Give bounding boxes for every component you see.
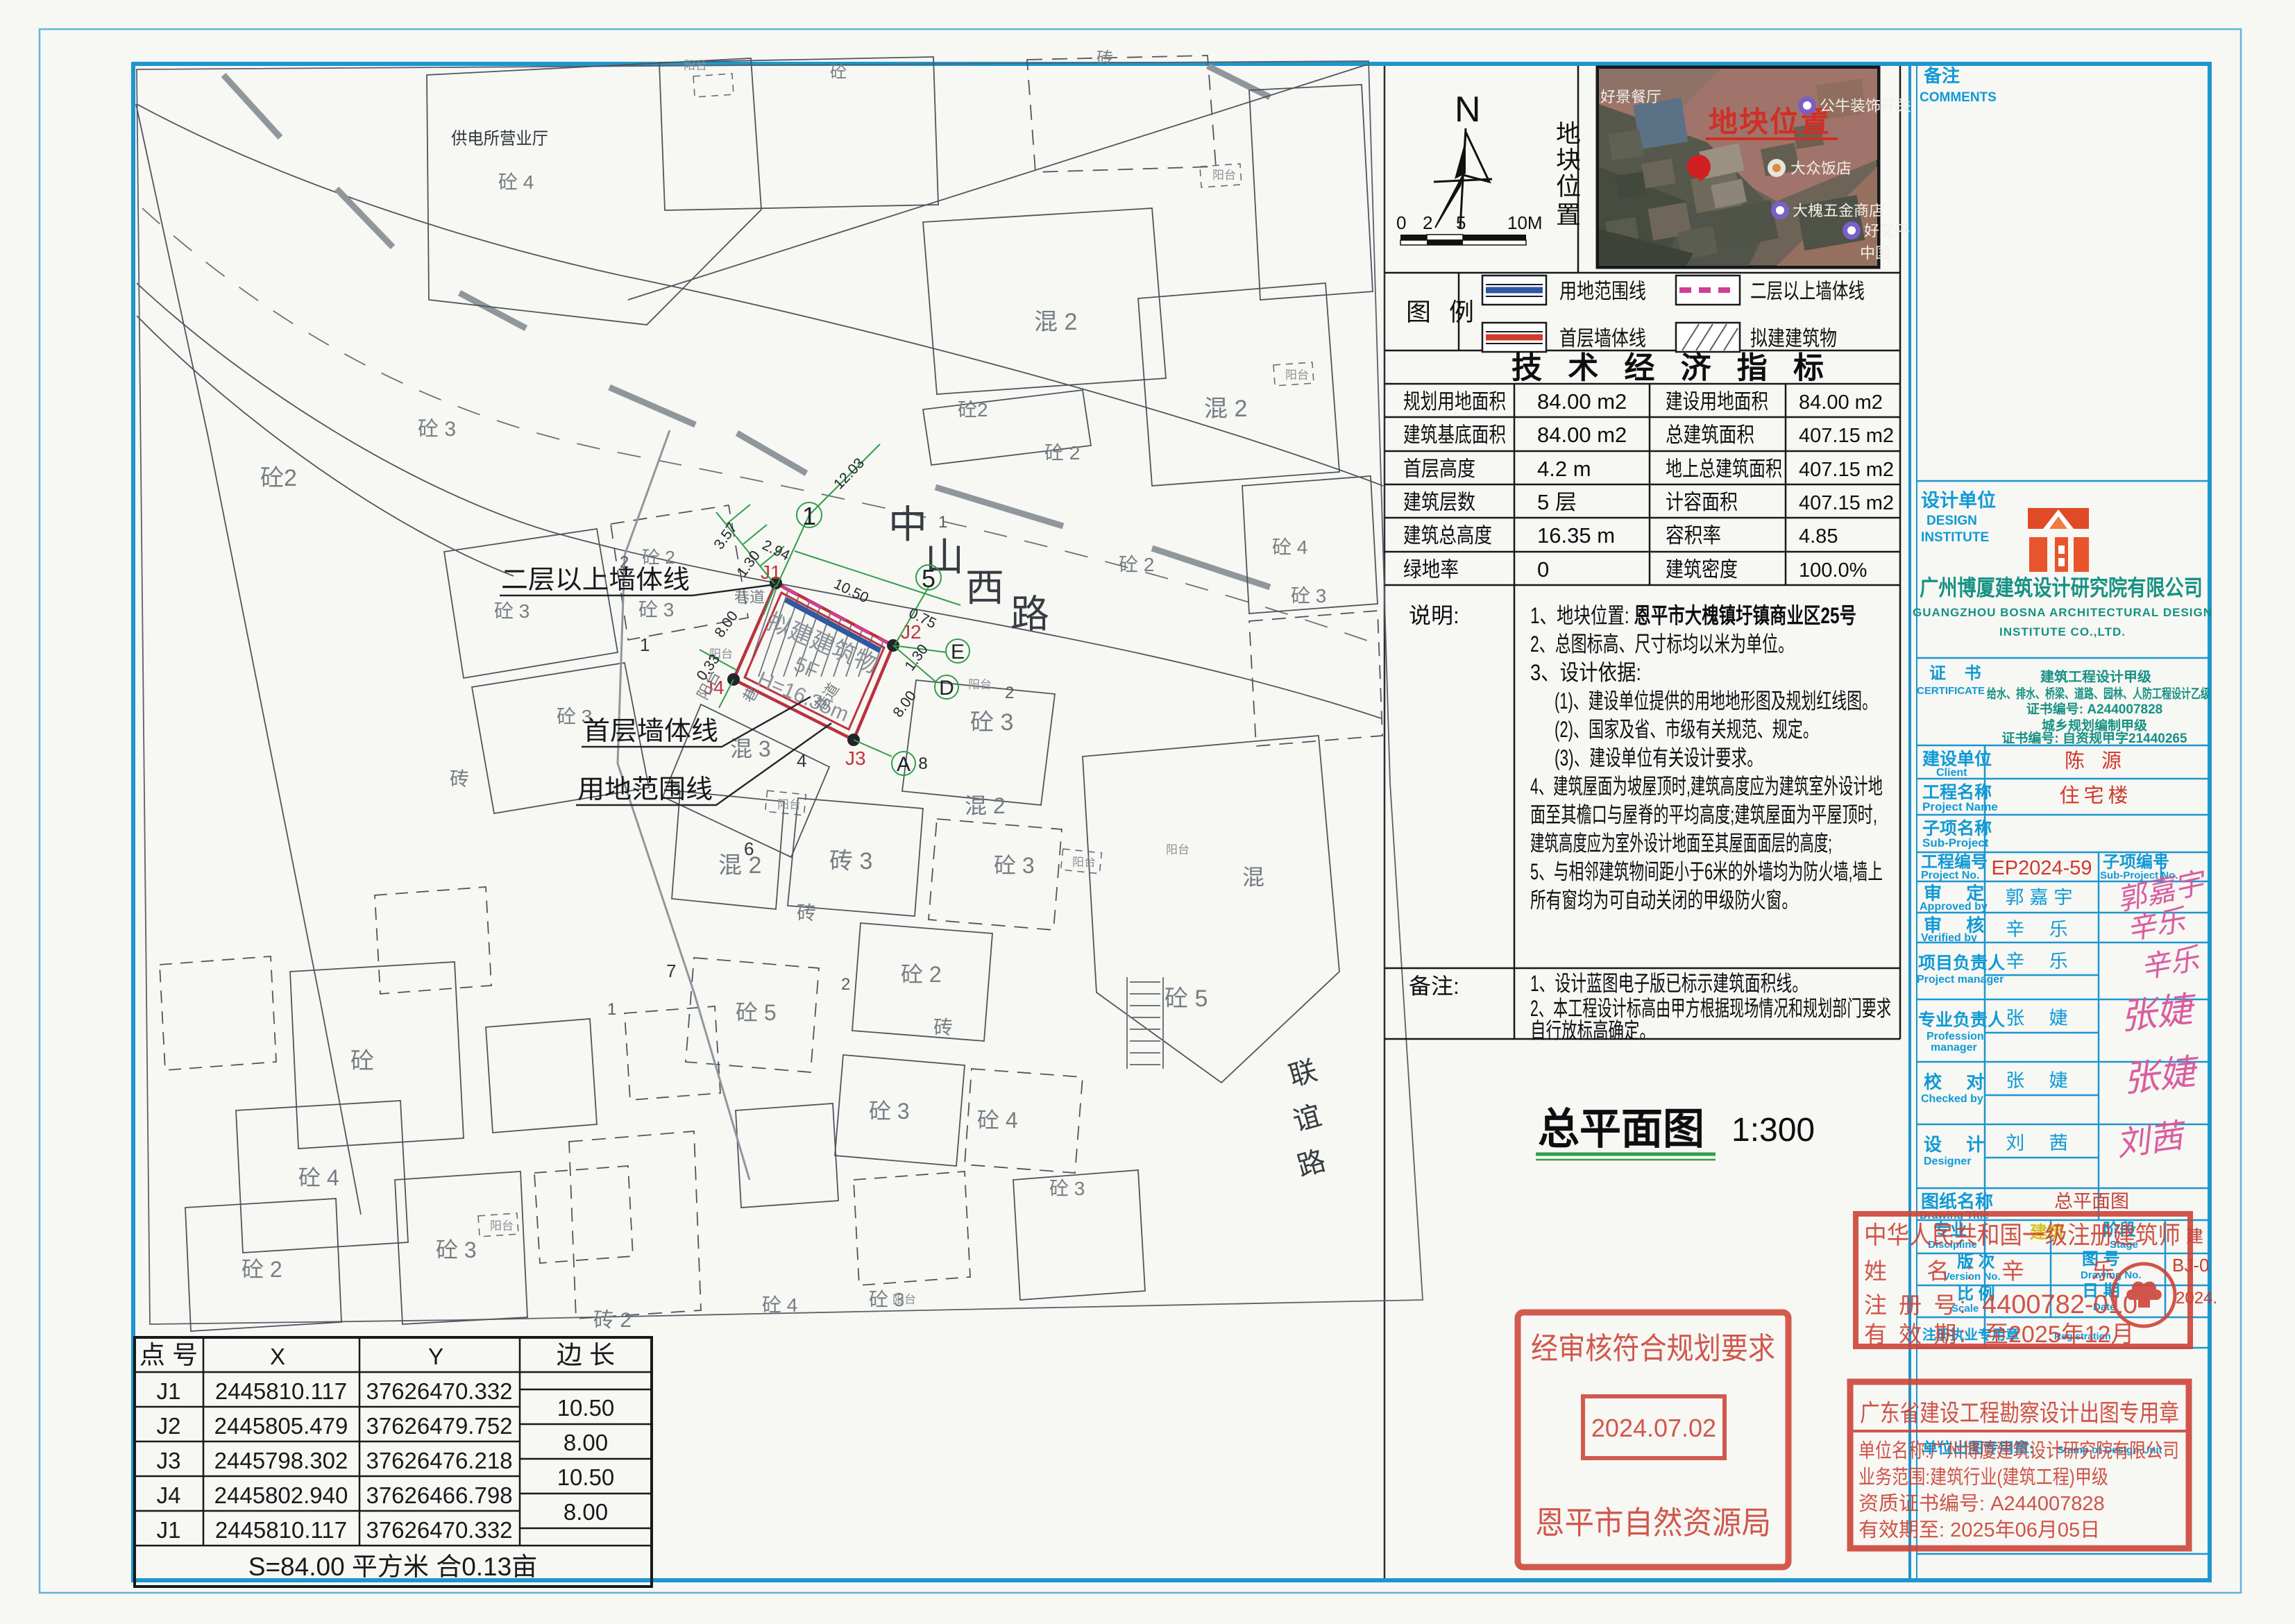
svg-text:DESIGN: DESIGN (1926, 514, 1977, 528)
svg-text:2: 2 (1005, 684, 1014, 702)
svg-text:供电所营业厅: 供电所营业厅 (451, 129, 548, 149)
svg-text:37626476.218: 37626476.218 (366, 1448, 512, 1473)
svg-text:广东省建设工程勘察设计出图专用章: 广东省建设工程勘察设计出图专用章 (1860, 1400, 2179, 1427)
svg-text:辛 乐: 辛 乐 (2006, 951, 2078, 972)
svg-text:绿地率: 绿地率 (1403, 557, 1459, 582)
svg-text:自行放标高确定。: 自行放标高确定。 (1530, 1018, 1655, 1043)
svg-text:12.03: 12.03 (831, 455, 867, 493)
svg-text:EP2024-59: EP2024-59 (1991, 857, 2092, 879)
svg-text:2、总图标高、尺寸标均以米为单位。: 2、总图标高、尺寸标均以米为单位。 (1530, 632, 1794, 657)
svg-text:2024.07.02: 2024.07.02 (1591, 1414, 1716, 1442)
svg-text:2445810.117: 2445810.117 (215, 1378, 347, 1404)
svg-text:1、地块位置: 恩平市大槐镇圩镇商业区25号: 1、地块位置: 恩平市大槐镇圩镇商业区25号 (1530, 603, 1856, 628)
svg-text:资质证书编号: A244007828: 资质证书编号: A244007828 (1858, 1493, 2105, 1515)
svg-text:置: 置 (1556, 201, 1581, 229)
svg-text:2: 2 (1423, 212, 1432, 233)
svg-text:混: 混 (1242, 865, 1264, 890)
svg-text:地上总建筑面积: 地上总建筑面积 (1666, 457, 1782, 481)
svg-text:manager: manager (1931, 1042, 1977, 1054)
svg-text:Project No.: Project No. (1921, 870, 1979, 881)
svg-text:37626479.752: 37626479.752 (366, 1413, 512, 1439)
svg-text:路: 路 (1294, 1145, 1329, 1182)
svg-text:84.00 m2: 84.00 m2 (1537, 389, 1627, 414)
svg-text:(3)、建设单位有关设计要求。: (3)、建设单位有关设计要求。 (1555, 745, 1763, 770)
svg-text:计容面积: 计容面积 (1666, 490, 1738, 514)
svg-text:J1: J1 (157, 1378, 181, 1404)
svg-text:阳台: 阳台 (1072, 856, 1096, 869)
svg-text:0: 0 (1396, 212, 1406, 233)
svg-text:2、本工程设计标高由甲方根据现场情况和规划部门要求: 2、本工程设计标高由甲方根据现场情况和规划部门要求 (1530, 996, 1891, 1021)
svg-text:砼 2: 砼 2 (1119, 554, 1154, 575)
svg-text:首层墙体线: 首层墙体线 (1559, 326, 1646, 350)
svg-text:J3: J3 (157, 1448, 181, 1473)
svg-text:1: 1 (607, 1000, 616, 1019)
svg-text:407.15 m2: 407.15 m2 (1799, 459, 1894, 481)
svg-text:砼 2: 砼 2 (242, 1257, 282, 1282)
svg-text:所有窗均为可自动关闭的甲级防火窗。: 所有窗均为可自动关闭的甲级防火窗。 (1530, 888, 1797, 913)
svg-text:2445798.302: 2445798.302 (214, 1448, 348, 1473)
svg-text:砼: 砼 (350, 1048, 374, 1074)
svg-text:100.0%: 100.0% (1799, 559, 1867, 582)
svg-text:中国: 中国 (1860, 244, 1890, 262)
svg-text:技 术 经 济 指 标: 技 术 经 济 指 标 (1511, 351, 1824, 385)
svg-text:公牛装饰开关: 公牛装饰开关 (1820, 97, 1911, 115)
svg-text:联: 联 (1285, 1055, 1321, 1092)
svg-text:辛 乐: 辛 乐 (2006, 919, 2078, 940)
svg-text:建筑密度: 建筑密度 (1666, 557, 1738, 582)
svg-text:砖: 砖 (797, 902, 816, 924)
svg-text:边 长: 边 长 (557, 1341, 615, 1369)
svg-text:砼 3: 砼 3 (494, 600, 530, 622)
svg-text:大众饭店: 大众饭店 (1790, 160, 1852, 177)
svg-text:单位名称:广州博厦建筑设计研究院有限公司: 单位名称:广州博厦建筑设计研究院有限公司 (1858, 1440, 2179, 1462)
svg-text:图 例: 图 例 (1406, 298, 1480, 326)
svg-text:4、建筑屋面为坡屋顶时,建筑高度应为建筑室外设计地: 4、建筑屋面为坡屋顶时,建筑高度应为建筑室外设计地 (1530, 774, 1883, 799)
svg-text:辛乐: 辛乐 (2138, 942, 2203, 984)
svg-text:给水、排水、桥梁、道路、园林、人防工程设计乙级: 给水、排水、桥梁、道路、园林、人防工程设计乙级 (1987, 686, 2211, 702)
svg-text:二层以上墙体线: 二层以上墙体线 (501, 566, 690, 595)
svg-text:8.00: 8.00 (564, 1499, 608, 1525)
svg-text:GUANGZHOU BOSNA ARCHITECTURAL: GUANGZHOU BOSNA ARCHITECTURAL DESIGN (1913, 606, 2212, 619)
svg-text:注 册 号:: 注 册 号: (1864, 1292, 1969, 1318)
svg-text:陈 源: 陈 源 (2065, 750, 2127, 772)
svg-text:姓 名:: 姓 名: (1864, 1258, 1989, 1284)
svg-text:N: N (1455, 90, 1481, 130)
svg-text:CERTIFICATE: CERTIFICATE (1917, 685, 1985, 697)
svg-text:Project Name: Project Name (1922, 800, 1998, 813)
svg-text:好又平: 好又平 (1864, 222, 1910, 239)
svg-text:(2)、国家及省、市级有关规范、规定。: (2)、国家及省、市级有关规范、规定。 (1555, 717, 1818, 742)
svg-text:8.00: 8.00 (890, 688, 920, 720)
svg-text:拟建建筑物: 拟建建筑物 (1750, 326, 1837, 350)
svg-text:Client: Client (1936, 767, 1967, 779)
svg-text:Checked by: Checked by (1921, 1093, 1983, 1105)
svg-text:砼 5: 砼 5 (736, 1000, 777, 1025)
svg-text:面至其檐口与屋脊的平均高度;建筑屋面为平屋顶时,: 面至其檐口与屋脊的平均高度;建筑屋面为平屋顶时, (1530, 802, 1877, 827)
svg-text:37626470.332: 37626470.332 (366, 1378, 512, 1404)
svg-text:砼 4: 砼 4 (1272, 536, 1307, 558)
svg-text:有效期至: 2025年06月05日: 有效期至: 2025年06月05日 (1858, 1519, 2100, 1541)
svg-text:407.15 m2: 407.15 m2 (1799, 492, 1894, 514)
svg-text:砼 3: 砼 3 (436, 1237, 477, 1262)
svg-text:5: 5 (1456, 212, 1466, 233)
svg-text:建筑总高度: 建筑总高度 (1403, 523, 1492, 548)
svg-text:设 计: 设 计 (1924, 1134, 1994, 1155)
svg-text:砼 4: 砼 4 (298, 1165, 339, 1190)
svg-text:用地范围线: 用地范围线 (577, 775, 713, 804)
svg-text:7: 7 (666, 961, 676, 981)
svg-text:设计单位: 设计单位 (1921, 490, 1996, 511)
svg-text:砼 2: 砼 2 (1044, 442, 1080, 464)
svg-text:容积率: 容积率 (1666, 523, 1721, 548)
svg-text:Verified by: Verified by (1921, 932, 1977, 944)
svg-text:巷道: 巷道 (734, 589, 765, 606)
svg-text:J1: J1 (157, 1517, 181, 1543)
svg-text:Designer: Designer (1924, 1156, 1971, 1167)
svg-text:建筑基底面积: 建筑基底面积 (1403, 423, 1506, 447)
svg-text:10.50: 10.50 (557, 1464, 615, 1490)
svg-text:2445802.940: 2445802.940 (214, 1482, 348, 1508)
svg-text:用地范围线: 用地范围线 (1559, 279, 1646, 303)
svg-text:407.15 m2: 407.15 m2 (1799, 425, 1894, 447)
svg-text:张婕: 张婕 (2119, 990, 2199, 1038)
svg-text:10M: 10M (1507, 212, 1543, 233)
svg-text:证 书: 证 书 (1929, 664, 1988, 683)
svg-text:砖: 砖 (933, 1017, 953, 1038)
svg-text:1.30: 1.30 (901, 641, 931, 674)
svg-text:恩平市自然资源局: 恩平市自然资源局 (1535, 1505, 1771, 1541)
svg-text:总平面图: 总平面图 (1538, 1106, 1704, 1153)
svg-text:证书编号: A244007828: 证书编号: A244007828 (2026, 702, 2162, 717)
svg-text:阳台: 阳台 (892, 1293, 916, 1306)
svg-text:张 婕: 张 婕 (2006, 1008, 2078, 1029)
svg-text:砼 3: 砼 3 (418, 418, 456, 441)
svg-text:阳台: 阳台 (968, 678, 992, 691)
svg-text:混 3: 混 3 (730, 736, 771, 761)
svg-text:2024.: 2024. (2176, 1289, 2217, 1308)
svg-text:2445805.479: 2445805.479 (214, 1413, 348, 1439)
svg-text:张 婕: 张 婕 (2006, 1070, 2078, 1091)
svg-text:证书编号: 自资规甲字21440265: 证书编号: 自资规甲字21440265 (2001, 731, 2187, 746)
svg-text:0: 0 (1537, 557, 1549, 582)
svg-text:砖: 砖 (450, 768, 469, 790)
svg-text:首层墙体线: 首层墙体线 (583, 717, 718, 746)
svg-text:砼 4: 砼 4 (977, 1108, 1018, 1133)
svg-text:备注:: 备注: (1409, 974, 1459, 999)
svg-text:住宅楼: 住宅楼 (2059, 785, 2132, 807)
svg-text:总平面图: 总平面图 (2054, 1191, 2129, 1212)
svg-text:至2025年12月: 至2025年12月 (1985, 1321, 2134, 1348)
svg-text:5、与相邻建筑物间距小于6米的外墙均为防火墙,墙上: 5、与相邻建筑物间距小于6米的外墙均为防火墙,墙上 (1530, 859, 1883, 884)
svg-text:37626470.332: 37626470.332 (366, 1517, 512, 1543)
svg-text:建筑层数: 建筑层数 (1403, 490, 1475, 514)
svg-text:D: D (939, 677, 954, 700)
svg-text:E: E (951, 641, 965, 663)
svg-text:砼 5: 砼 5 (1165, 986, 1208, 1012)
svg-text:阳台: 阳台 (1285, 369, 1309, 382)
svg-text:点 号: 点 号 (139, 1341, 198, 1369)
svg-text:砼: 砼 (830, 63, 847, 82)
svg-text:阳台: 阳台 (1166, 843, 1189, 856)
svg-text:说明:: 说明: (1409, 603, 1459, 628)
svg-text:子项编号: 子项编号 (2103, 853, 2169, 872)
svg-text:砼 3: 砼 3 (994, 853, 1035, 878)
svg-text:INSTITUTE: INSTITUTE (1921, 530, 1989, 545)
svg-text:阳台: 阳台 (777, 798, 801, 811)
svg-text:建筑工程设计甲级: 建筑工程设计甲级 (2040, 669, 2152, 685)
svg-text:Profession: Profession (1926, 1031, 1984, 1042)
svg-text:混 2: 混 2 (965, 793, 1006, 818)
svg-text:大槐五金商店: 大槐五金商店 (1793, 202, 1884, 219)
svg-text:路: 路 (1010, 592, 1049, 636)
svg-text:2445810.117: 2445810.117 (215, 1517, 347, 1543)
svg-text:砖: 砖 (1096, 49, 1113, 68)
svg-text:有 效 期:: 有 效 期: (1864, 1321, 1969, 1347)
svg-text:砼 3: 砼 3 (869, 1099, 910, 1124)
svg-text:中华人民共和国一级注册建筑师: 中华人民共和国一级注册建筑师 (1864, 1221, 2180, 1249)
svg-text:中: 中 (888, 502, 927, 546)
svg-text:1: 1 (802, 502, 816, 530)
svg-text:5 层: 5 层 (1537, 490, 1577, 514)
svg-text:84.00 m2: 84.00 m2 (1799, 391, 1883, 414)
svg-text:8.00: 8.00 (564, 1430, 608, 1455)
svg-text:Project manager: Project manager (1917, 974, 2004, 986)
svg-text:S=84.00 平方米 合0.13亩: S=84.00 平方米 合0.13亩 (248, 1553, 537, 1581)
svg-text:砼2: 砼2 (260, 465, 297, 491)
svg-text:1: 1 (640, 634, 650, 655)
svg-text:二层以上墙体线: 二层以上墙体线 (1750, 279, 1865, 303)
svg-text:阳台: 阳台 (490, 1219, 514, 1233)
svg-text:首层高度: 首层高度 (1403, 457, 1475, 481)
svg-text:谊: 谊 (1289, 1100, 1325, 1137)
svg-text:块: 块 (1556, 146, 1581, 174)
svg-text:刘 茜: 刘 茜 (2006, 1133, 2078, 1153)
svg-text:4.2 m: 4.2 m (1537, 457, 1591, 481)
svg-text:好景餐厅: 好景餐厅 (1600, 88, 1661, 105)
svg-text:2.94: 2.94 (760, 537, 793, 564)
svg-text:建设用地面积: 建设用地面积 (1666, 389, 1768, 414)
svg-text:阳台: 阳台 (684, 59, 707, 72)
svg-text:Approved by: Approved by (1920, 901, 1988, 913)
svg-text:砼 3: 砼 3 (1291, 585, 1326, 607)
svg-text:砼 2: 砼 2 (642, 547, 675, 568)
svg-text:业务范围:建筑行业(建筑工程)甲级: 业务范围:建筑行业(建筑工程)甲级 (1858, 1466, 2108, 1489)
svg-text:2: 2 (841, 975, 850, 994)
svg-text:16.35 m: 16.35 m (1537, 523, 1615, 548)
svg-text:砼 3: 砼 3 (638, 599, 674, 620)
svg-text:广州博厦建筑设计研究院有限公司: 广州博厦建筑设计研究院有限公司 (1920, 575, 2203, 600)
svg-text:(1)、建设单位提供的用地地形图及规划红线图。: (1)、建设单位提供的用地地形图及规划红线图。 (1555, 688, 1877, 713)
svg-text:J3: J3 (845, 747, 866, 769)
svg-text:砖 2: 砖 2 (593, 1309, 632, 1332)
svg-text:规划用地面积: 规划用地面积 (1403, 389, 1506, 414)
svg-text:工程编号: 工程编号 (1921, 853, 1988, 872)
svg-text:砼 2: 砼 2 (901, 962, 942, 987)
svg-text:校 对: 校 对 (1924, 1072, 1994, 1092)
svg-text:子项名称: 子项名称 (1922, 819, 1992, 838)
svg-text:地: 地 (1556, 119, 1581, 148)
svg-text:砼 3: 砼 3 (1049, 1178, 1085, 1199)
svg-text:经审核符合规划要求: 经审核符合规划要求 (1531, 1332, 1775, 1366)
svg-text:5: 5 (922, 564, 935, 593)
svg-text:J4: J4 (157, 1482, 181, 1508)
svg-text:混 2: 混 2 (718, 852, 761, 879)
svg-text:1、设计蓝图电子版已标示建筑面积线。: 1、设计蓝图电子版已标示建筑面积线。 (1530, 971, 1808, 996)
svg-text:3、设计依据:: 3、设计依据: (1530, 660, 1641, 685)
svg-text:Y: Y (428, 1344, 443, 1369)
svg-text:10.50: 10.50 (557, 1395, 615, 1421)
svg-text:建设单位: 建设单位 (1922, 750, 1992, 769)
svg-text:X: X (270, 1344, 285, 1369)
svg-text:混 2: 混 2 (1204, 396, 1247, 422)
svg-text:砖 3: 砖 3 (829, 848, 872, 874)
svg-text:砼2: 砼2 (958, 399, 988, 421)
svg-text:工程名称: 工程名称 (1922, 783, 1992, 802)
svg-text:图纸名称: 图纸名称 (1921, 1191, 1993, 1212)
svg-text:砼 3: 砼 3 (970, 709, 1013, 736)
svg-text:4.85: 4.85 (1799, 525, 1838, 548)
svg-text:西: 西 (965, 566, 1004, 609)
svg-text:8: 8 (918, 754, 927, 773)
svg-text:总建筑面积: 总建筑面积 (1666, 423, 1754, 447)
svg-text:项目负责人: 项目负责人 (1918, 954, 2005, 973)
svg-text:84.00 m2: 84.00 m2 (1537, 423, 1627, 447)
svg-text:建筑高度应为室外设计地面至其屋面面层的高度;: 建筑高度应为室外设计地面至其屋面面层的高度; (1530, 831, 1832, 856)
svg-text:混 2: 混 2 (1034, 309, 1077, 335)
svg-text:A: A (897, 753, 911, 776)
svg-text:J2: J2 (157, 1413, 181, 1439)
svg-text:6: 6 (744, 838, 754, 859)
svg-text:专业负责人: 专业负责人 (1918, 1010, 2005, 1030)
svg-text:Sub-Project: Sub-Project (1922, 836, 1989, 849)
svg-text:INSTITUTE CO.,LTD.: INSTITUTE CO.,LTD. (1999, 625, 2126, 638)
svg-text:1: 1 (938, 513, 947, 532)
svg-text:8.00: 8.00 (711, 608, 741, 641)
svg-text:备注: 备注 (1923, 65, 1960, 86)
svg-text:1:300: 1:300 (1731, 1112, 1815, 1149)
svg-text:郭嘉宇: 郭嘉宇 (2006, 887, 2078, 908)
svg-text:阳台: 阳台 (1212, 169, 1236, 182)
svg-text:砼 4: 砼 4 (762, 1294, 797, 1316)
svg-text:张婕: 张婕 (2122, 1052, 2202, 1100)
svg-text:COMMENTS: COMMENTS (1920, 90, 1997, 105)
svg-text:位: 位 (1556, 172, 1581, 201)
svg-text:砼 4: 砼 4 (498, 171, 534, 193)
svg-text:5F: 5F (790, 652, 822, 683)
svg-text:10.50: 10.50 (831, 576, 871, 607)
svg-text:37626466.798: 37626466.798 (366, 1482, 512, 1508)
svg-text:4: 4 (797, 750, 806, 771)
